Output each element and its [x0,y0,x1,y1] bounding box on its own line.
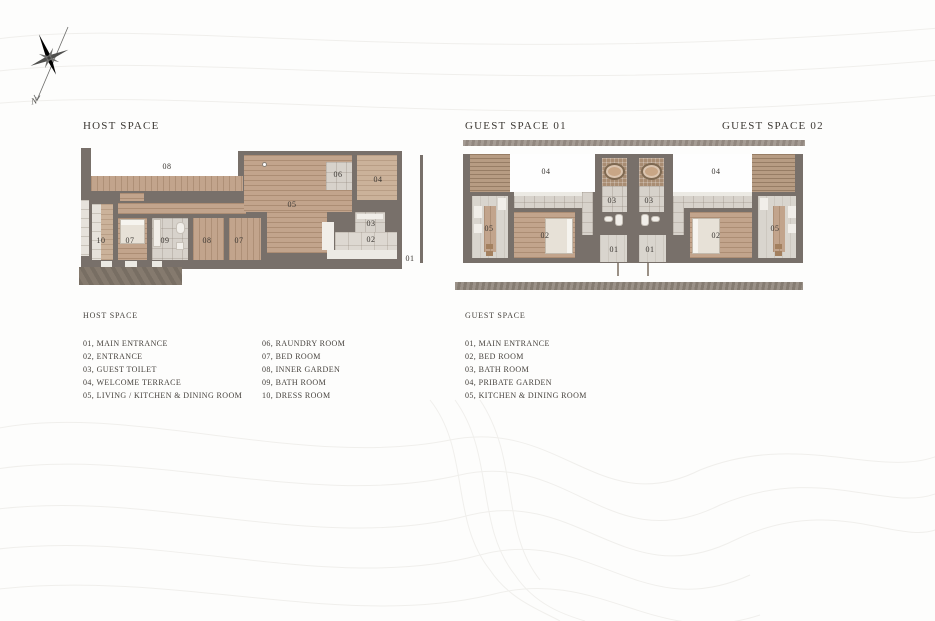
guest-space-02-title: GUEST SPACE 02 [722,120,824,132]
host-boundary-wall-line [420,155,423,263]
guest-legend-items: 01, MAIN ENTRANCE02, BED ROOM03, BATH RO… [465,337,587,402]
legend-item: 06, RAUNDRY ROOM [262,337,345,350]
host-sink [176,242,184,250]
room-label-inner-garden: 08 [160,162,174,172]
room-label-bed-right: 02 [709,231,723,241]
guest1-toilet [615,214,623,226]
legend-item: 07, BED ROOM [262,350,345,363]
guest2-counter [760,198,768,210]
host-living-closet [322,222,334,250]
room-label-entry-left: 01 [607,245,621,255]
host-bed1-pillow [121,220,144,225]
room-label-bath: 09 [158,236,172,246]
room-label-kitchen-right: 05 [768,224,782,234]
host-legend-col1: 01, MAIN ENTRANCE02, ENTRANCE03, GUEST T… [83,337,242,402]
host-door-pivot-dot [262,162,267,167]
guest2-terrace-edge [673,192,752,196]
guest1-side-corridor [582,192,593,235]
host-wall-column [81,148,91,203]
room-label-bath-right: 03 [642,196,656,206]
host-living-floor-lower [267,212,327,253]
guest1-deck [470,154,510,192]
room-label-bath-left: 03 [605,196,619,206]
legend-item: 03, BATH ROOM [465,363,587,376]
legend-item: 03, GUEST TOILET [83,363,242,376]
room-label-entrance: 02 [364,235,378,245]
guest1-sink [604,216,613,222]
guest-legend-heading: GUEST SPACE [465,311,526,320]
room-label-entry-right: 01 [643,245,657,255]
host-dress-closet [92,204,101,260]
legend-item: 08, INNER GARDEN [262,363,345,376]
guest-bottom-strip [455,282,803,290]
legend-item: 01, MAIN ENTRANCE [465,337,587,350]
guest-wall-left [463,154,470,263]
legend-item: 01, MAIN ENTRANCE [83,337,242,350]
guest2-bed-pillow [693,219,698,253]
guest1-counter [474,224,482,233]
guest-wall-right [795,154,803,263]
room-label-living: 05 [285,200,299,210]
host-entry-steps [327,250,397,259]
legend-item: 04, PRIBATE GARDEN [465,376,587,389]
guest2-entry-step-line [647,263,649,276]
room-label-terrace: 04 [371,175,385,185]
legend-item: 05, LIVING / KITCHEN & DINING ROOM [83,389,242,402]
room-label-laundry: 06 [331,170,345,180]
room-label-toilet: 03 [364,219,378,229]
host-toilet [176,222,185,234]
legend-item: 02, ENTRANCE [83,350,242,363]
host-dress-floor [101,204,113,260]
host-engawa-strip [81,200,89,256]
guest2-stool [775,244,782,249]
host-space-title: HOST SPACE [83,120,160,132]
guest-space-01-title: GUEST SPACE 01 [465,120,567,132]
compass-rose-icon [10,25,100,120]
room-label-garden-right: 04 [709,167,723,177]
guest2-counter [788,224,796,233]
guest1-stool [486,251,493,256]
guest1-entry-step-line [617,263,619,276]
room-label-main-entrance: 01 [403,254,417,264]
host-legend-col2: 06, RAUNDRY ROOM07, BED ROOM08, INNER GA… [262,337,345,402]
guest1-counter [498,198,506,210]
host-door-opening [120,193,144,201]
room-label-bed2: 07 [232,236,246,246]
host-ground-terrace [79,267,182,285]
legend-item: 10, DRESS ROOM [262,389,345,402]
guest1-counter [474,206,482,218]
guest1-bed-pillow [567,219,572,253]
guest1-bathtub [604,163,625,180]
legend-item: 02, BED ROOM [465,350,587,363]
guest2-sink [651,216,660,222]
legend-item: 09, BATH ROOM [262,376,345,389]
floor-plan-sheet: N HOST SPACE GUEST SPACE 01 GUEST SPACE … [0,0,935,621]
host-deck-band [91,176,243,191]
host-corridor-floor [118,203,238,214]
guest2-bathtub [641,163,662,180]
room-label-kitchen-left: 05 [482,224,496,234]
legend-item: 05, KITCHEN & DINING ROOM [465,389,587,402]
guest-top-strip [463,140,805,146]
host-legend-heading: HOST SPACE [83,311,138,320]
legend-item: 04, WELCOME TERRACE [83,376,242,389]
room-label-garden-left: 04 [539,167,553,177]
guest2-toilet [641,214,649,226]
guest2-deck [752,154,795,192]
guest2-counter [788,206,796,218]
guest2-stool [775,251,782,256]
room-label-dress: 10 [94,236,108,246]
room-label-bed1: 07 [123,236,137,246]
room-label-inner2: 08 [200,236,214,246]
guest1-stool [486,244,493,249]
room-label-bed-left: 02 [538,231,552,241]
